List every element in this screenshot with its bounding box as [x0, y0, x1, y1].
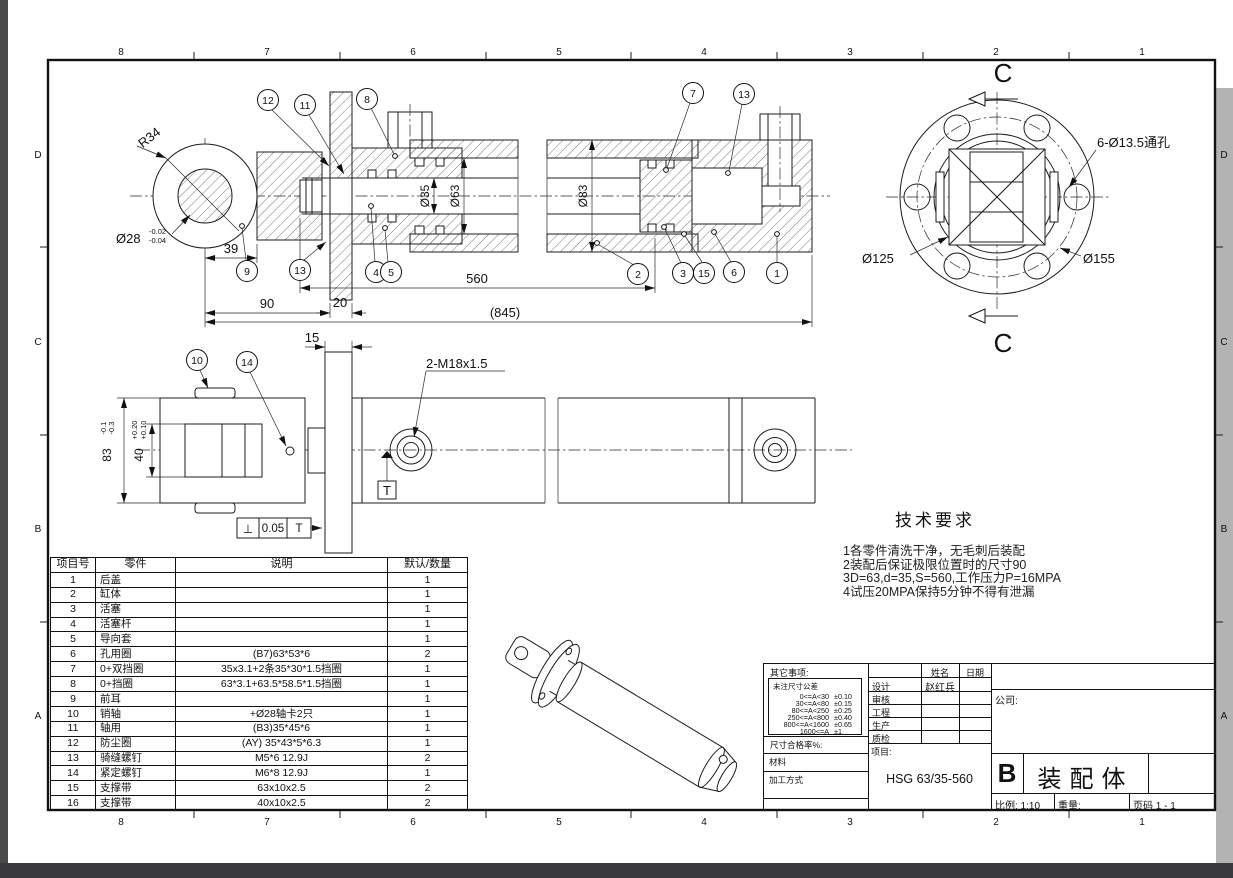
dim-d35: Ø35 [418, 184, 432, 207]
dim-15: 15 [305, 330, 319, 345]
balloon-12: 12 [262, 95, 274, 107]
tech-req-line: 2装配后保证极限位置时的尺寸90 [835, 559, 1207, 573]
zone-col: 2 [993, 817, 999, 828]
process-label: 加工方式 [769, 774, 803, 786]
dim-d28: Ø28 [116, 231, 141, 246]
zone-col: 6 [410, 817, 416, 828]
dim-d83: Ø83 [576, 184, 590, 207]
section-cc-view: C C 6-Ø13.5通孔 Ø125 Ø155 [862, 58, 1170, 358]
dim-20: 20 [333, 295, 347, 310]
isometric-view [492, 616, 749, 810]
zone-col: 4 [701, 817, 707, 828]
table-row: 13骑缝螺钉M5*6 12.9J2 [51, 751, 468, 766]
designer-name: 赵红兵 [921, 679, 959, 694]
zone-col: 8 [118, 817, 124, 828]
tolerance-title: 未注尺寸公差 [769, 679, 861, 693]
zone-col: 2 [993, 47, 999, 58]
balloon-6: 6 [731, 267, 737, 279]
table-row: 3活塞1 [51, 602, 468, 617]
role-design: 设计 [872, 680, 890, 693]
project-number: HSG 63/35-560 [868, 772, 991, 786]
role-qc: 质检 [872, 732, 890, 745]
balloon-13: 13 [738, 89, 750, 101]
balloon-10: 10 [191, 355, 203, 367]
dim-40-tol-lo: +0.10 [139, 421, 148, 440]
tech-req-title: 技术要求 [835, 506, 1207, 531]
project-label: 项目: [871, 745, 892, 758]
zone-row: D [34, 150, 41, 161]
zone-row: A [1221, 711, 1228, 722]
drawing-title: 装配体 [1023, 759, 1148, 794]
tech-req-line: 4试压20MPA保持5分钟不得有泄漏 [835, 586, 1207, 600]
zone-col: 7 [264, 47, 270, 58]
zone-row: B [35, 524, 42, 535]
scale-label: 比例: 1:10 [995, 797, 1040, 812]
dim-845: (845) [490, 305, 520, 320]
lower-view: T ⊥ 0.05 T [138, 352, 852, 553]
balloon-14: 14 [241, 357, 253, 369]
technical-requirements: 技术要求 1各零件清洗干净，无毛刺后装配 2装配后保证极限位置时的尺寸90 3D… [835, 506, 1207, 599]
zone-col: 7 [264, 817, 270, 828]
tolerance-table: 未注尺寸公差 0<=A<30±0.10 30<=A<80±0.15 80<=A<… [768, 678, 862, 735]
zone-col: 5 [556, 47, 562, 58]
role-review: 审核 [872, 693, 890, 706]
dim-83: 83 [100, 448, 114, 462]
balloon-7: 7 [690, 88, 696, 100]
zone-col: 4 [701, 47, 707, 58]
gdt-value: 0.05 [262, 523, 284, 535]
dim-d63: Ø63 [448, 184, 462, 207]
zone-row: A [35, 711, 42, 722]
table-row: 15支撑带63x10x2.52 [51, 781, 468, 796]
dim-d125: Ø125 [862, 251, 894, 266]
section-mark-top: C [994, 58, 1013, 88]
company-label: 公司: [995, 692, 1018, 707]
dim-d28-tol-up: -0.02 [149, 227, 166, 236]
name-header: 姓名 [921, 666, 959, 679]
balloon-1: 1 [774, 268, 780, 280]
date-header: 日期 [959, 666, 991, 679]
dim-d155: Ø155 [1083, 251, 1115, 266]
gdt-symbol: ⊥ [243, 522, 253, 536]
balloon-2: 2 [635, 269, 641, 281]
section-mark-bottom: C [994, 328, 1013, 358]
table-row: 9前耳1 [51, 692, 468, 707]
balloon-5: 5 [388, 267, 394, 279]
dim-d28-tol-lo: -0.04 [149, 236, 166, 245]
parts-table-header: 项目号零件说明默认/数量 [51, 558, 468, 573]
page-label: 页码 1 - 1 [1133, 797, 1176, 812]
dim-40: 40 [132, 448, 146, 462]
table-row: 14紧定螺钉M6*8 12.9J1 [51, 766, 468, 781]
zone-col: 5 [556, 817, 562, 828]
cad-drawing-sheet: 8 7 6 5 4 3 2 1 8 7 6 5 4 3 2 1 D C B A … [0, 0, 1233, 878]
dim-560: 560 [466, 271, 488, 286]
parts-table: 项目号零件说明默认/数量 1后盖1 2缸体1 3活塞1 4活塞杆1 5导向套1 … [50, 557, 468, 811]
zone-row: C [1220, 337, 1227, 348]
zone-col: 8 [118, 47, 124, 58]
dim-83-tol-lo: -0.3 [107, 422, 116, 435]
weight-label: 重量: [1058, 797, 1081, 812]
table-row: 16支撑带40x10x2.52 [51, 796, 468, 811]
zone-col: 1 [1139, 47, 1145, 58]
balloon-8: 8 [364, 94, 370, 106]
gdt-datum-ref: T [295, 523, 302, 535]
balloon-9: 9 [244, 266, 250, 278]
dim-40-tol-up: +0.20 [130, 421, 139, 440]
table-row: 10销轴+Ø28轴卡2只1 [51, 706, 468, 721]
zone-row: D [1220, 150, 1227, 161]
revision-letter: B [991, 758, 1023, 789]
table-row: 1后盖1 [51, 572, 468, 587]
datum-label: T [383, 483, 391, 498]
table-row: 11轴用(B3)35*45*61 [51, 721, 468, 736]
table-row: 12防尘圈(AY) 35*43*5*6.31 [51, 736, 468, 751]
role-production: 生产 [872, 719, 890, 732]
balloon-4: 4 [373, 267, 379, 279]
zone-col: 3 [847, 47, 853, 58]
role-engineering: 工程 [872, 706, 890, 719]
title-block: 其它事项: 未注尺寸公差 0<=A<30±0.10 30<=A<80±0.15 … [763, 663, 1216, 811]
label-holes: 6-Ø13.5通孔 [1097, 135, 1170, 150]
dim-39: 39 [224, 241, 238, 256]
table-row: 4活塞杆1 [51, 617, 468, 632]
zone-col: 3 [847, 817, 853, 828]
tech-req-line: 1各零件清洗干净，无毛刺后装配 [835, 545, 1207, 559]
zone-col: 1 [1139, 817, 1145, 828]
table-row: 5导向套1 [51, 632, 468, 647]
tech-req-line: 3D=63,d=35,S=560,工作压力P=16MPA [835, 572, 1207, 586]
balloon-11: 11 [300, 100, 311, 112]
zone-col: 6 [410, 47, 416, 58]
zone-row: B [1221, 524, 1228, 535]
table-row: 70+双挡圈35x3.1+2条35*30*1.5挡圈1 [51, 662, 468, 677]
material-label: 材料 [769, 756, 786, 768]
dim-90: 90 [260, 296, 274, 311]
balloon-13b: 13 [294, 265, 306, 277]
balloon-3: 3 [680, 268, 686, 280]
table-row: 6孔用圈(B7)63*53*62 [51, 647, 468, 662]
zone-row: C [34, 337, 41, 348]
dim-thread: 2-M18x1.5 [426, 356, 487, 371]
rate-label: 尺寸合格率%: [770, 739, 822, 751]
table-row: 80+挡圈63*3.1+63.5*58.5*1.5挡圈1 [51, 677, 468, 692]
balloon-15: 15 [698, 268, 710, 280]
table-row: 2缸体1 [51, 587, 468, 602]
